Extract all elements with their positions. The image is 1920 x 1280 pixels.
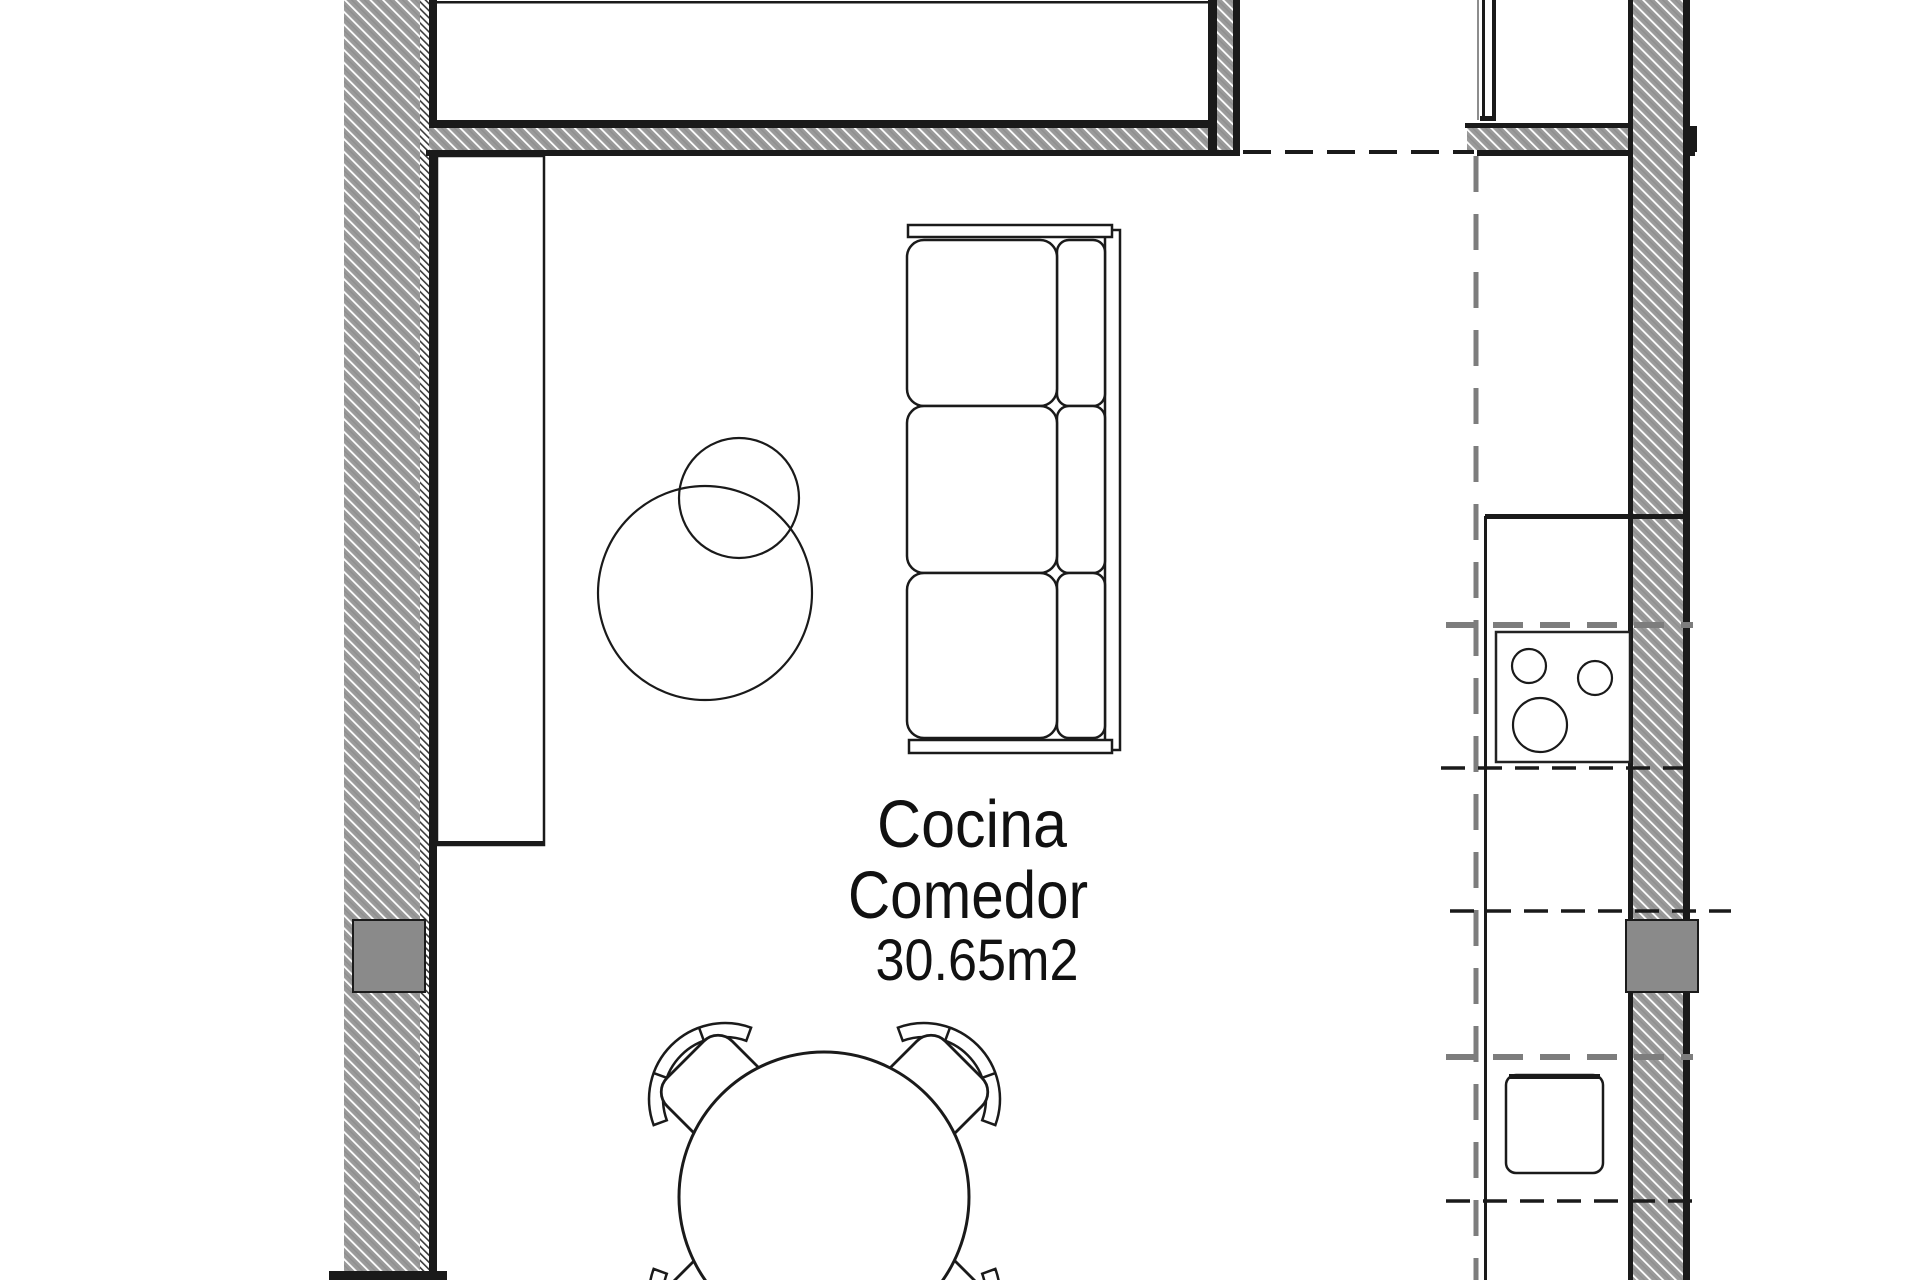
- left-column-block: [353, 920, 425, 992]
- counter-front-edge: [1484, 516, 1487, 1280]
- counter-top-edge: [1485, 514, 1690, 519]
- plant-large-circle: [598, 486, 812, 700]
- sink: [1506, 1075, 1603, 1173]
- room-area-label: 30.65m2: [876, 928, 1079, 993]
- left-wall-insulation: [420, 0, 429, 1280]
- left-wall-bottom-cut-mark: [329, 1271, 447, 1280]
- right-column-block: [1626, 920, 1698, 992]
- sofa-seat-cushion-3: [907, 573, 1057, 738]
- room-name-line1: Cocina: [877, 787, 1068, 862]
- sofa-backrest-cushion-1: [1057, 240, 1105, 406]
- sofa-backrest-cushion-2: [1057, 406, 1105, 573]
- floor-plan-svg: Cocina Comedor 30.65m2: [0, 0, 1920, 1280]
- window-outer-line: [1477, 0, 1479, 120]
- floor-plan-canvas: Cocina Comedor 30.65m2: [0, 0, 1920, 1280]
- closet-wall-left-edge: [1208, 0, 1217, 150]
- furniture: [437, 156, 1120, 1280]
- sofa-back-frame: [1105, 230, 1120, 750]
- window-frame-line-2: [1492, 0, 1496, 119]
- sink-basin: [1506, 1075, 1603, 1173]
- right-wall-hatch: [1633, 0, 1683, 1280]
- cooktop-body: [1496, 632, 1630, 762]
- top-wall: [426, 1, 1240, 156]
- right-wall: [1626, 0, 1698, 1280]
- plant-symbol: [598, 438, 812, 700]
- left-wall-hatch: [344, 0, 420, 1280]
- left-wall: [329, 0, 447, 1280]
- room-labels: Cocina Comedor 30.65m2: [848, 787, 1088, 993]
- sideboard-bottom-edge: [437, 841, 544, 846]
- right-wall-right-edge: [1683, 0, 1690, 1280]
- sofa-backrest-cushion-3: [1057, 573, 1105, 738]
- plant-small-circle: [679, 438, 799, 558]
- top-right-wall-hatch: [1467, 128, 1633, 150]
- closet-wall-right-edge: [1233, 0, 1240, 156]
- closet-wall-hatch: [1217, 0, 1233, 150]
- dining-set: [623, 997, 1027, 1280]
- top-right-wall-upper-line: [1465, 123, 1628, 128]
- window-sill: [1480, 116, 1496, 121]
- sofa-bottom-armrest: [909, 740, 1112, 753]
- top-wall-upper-line: [437, 120, 1208, 128]
- cooktop: [1496, 632, 1630, 762]
- top-wall-lower-line: [426, 150, 1240, 156]
- closet-right-wall: [1208, 0, 1240, 156]
- sofa-top-armrest: [908, 225, 1112, 237]
- sofa: [907, 225, 1120, 753]
- sideboard: [437, 156, 544, 845]
- sofa-seat-cushion-1: [907, 240, 1057, 406]
- closet-top-edge: [437, 1, 1208, 4]
- room-name-line2: Comedor: [848, 858, 1088, 933]
- top-wall-hatch: [429, 128, 1208, 150]
- window-frame-line-1: [1482, 0, 1485, 119]
- sofa-seat-cushion-2: [907, 406, 1057, 573]
